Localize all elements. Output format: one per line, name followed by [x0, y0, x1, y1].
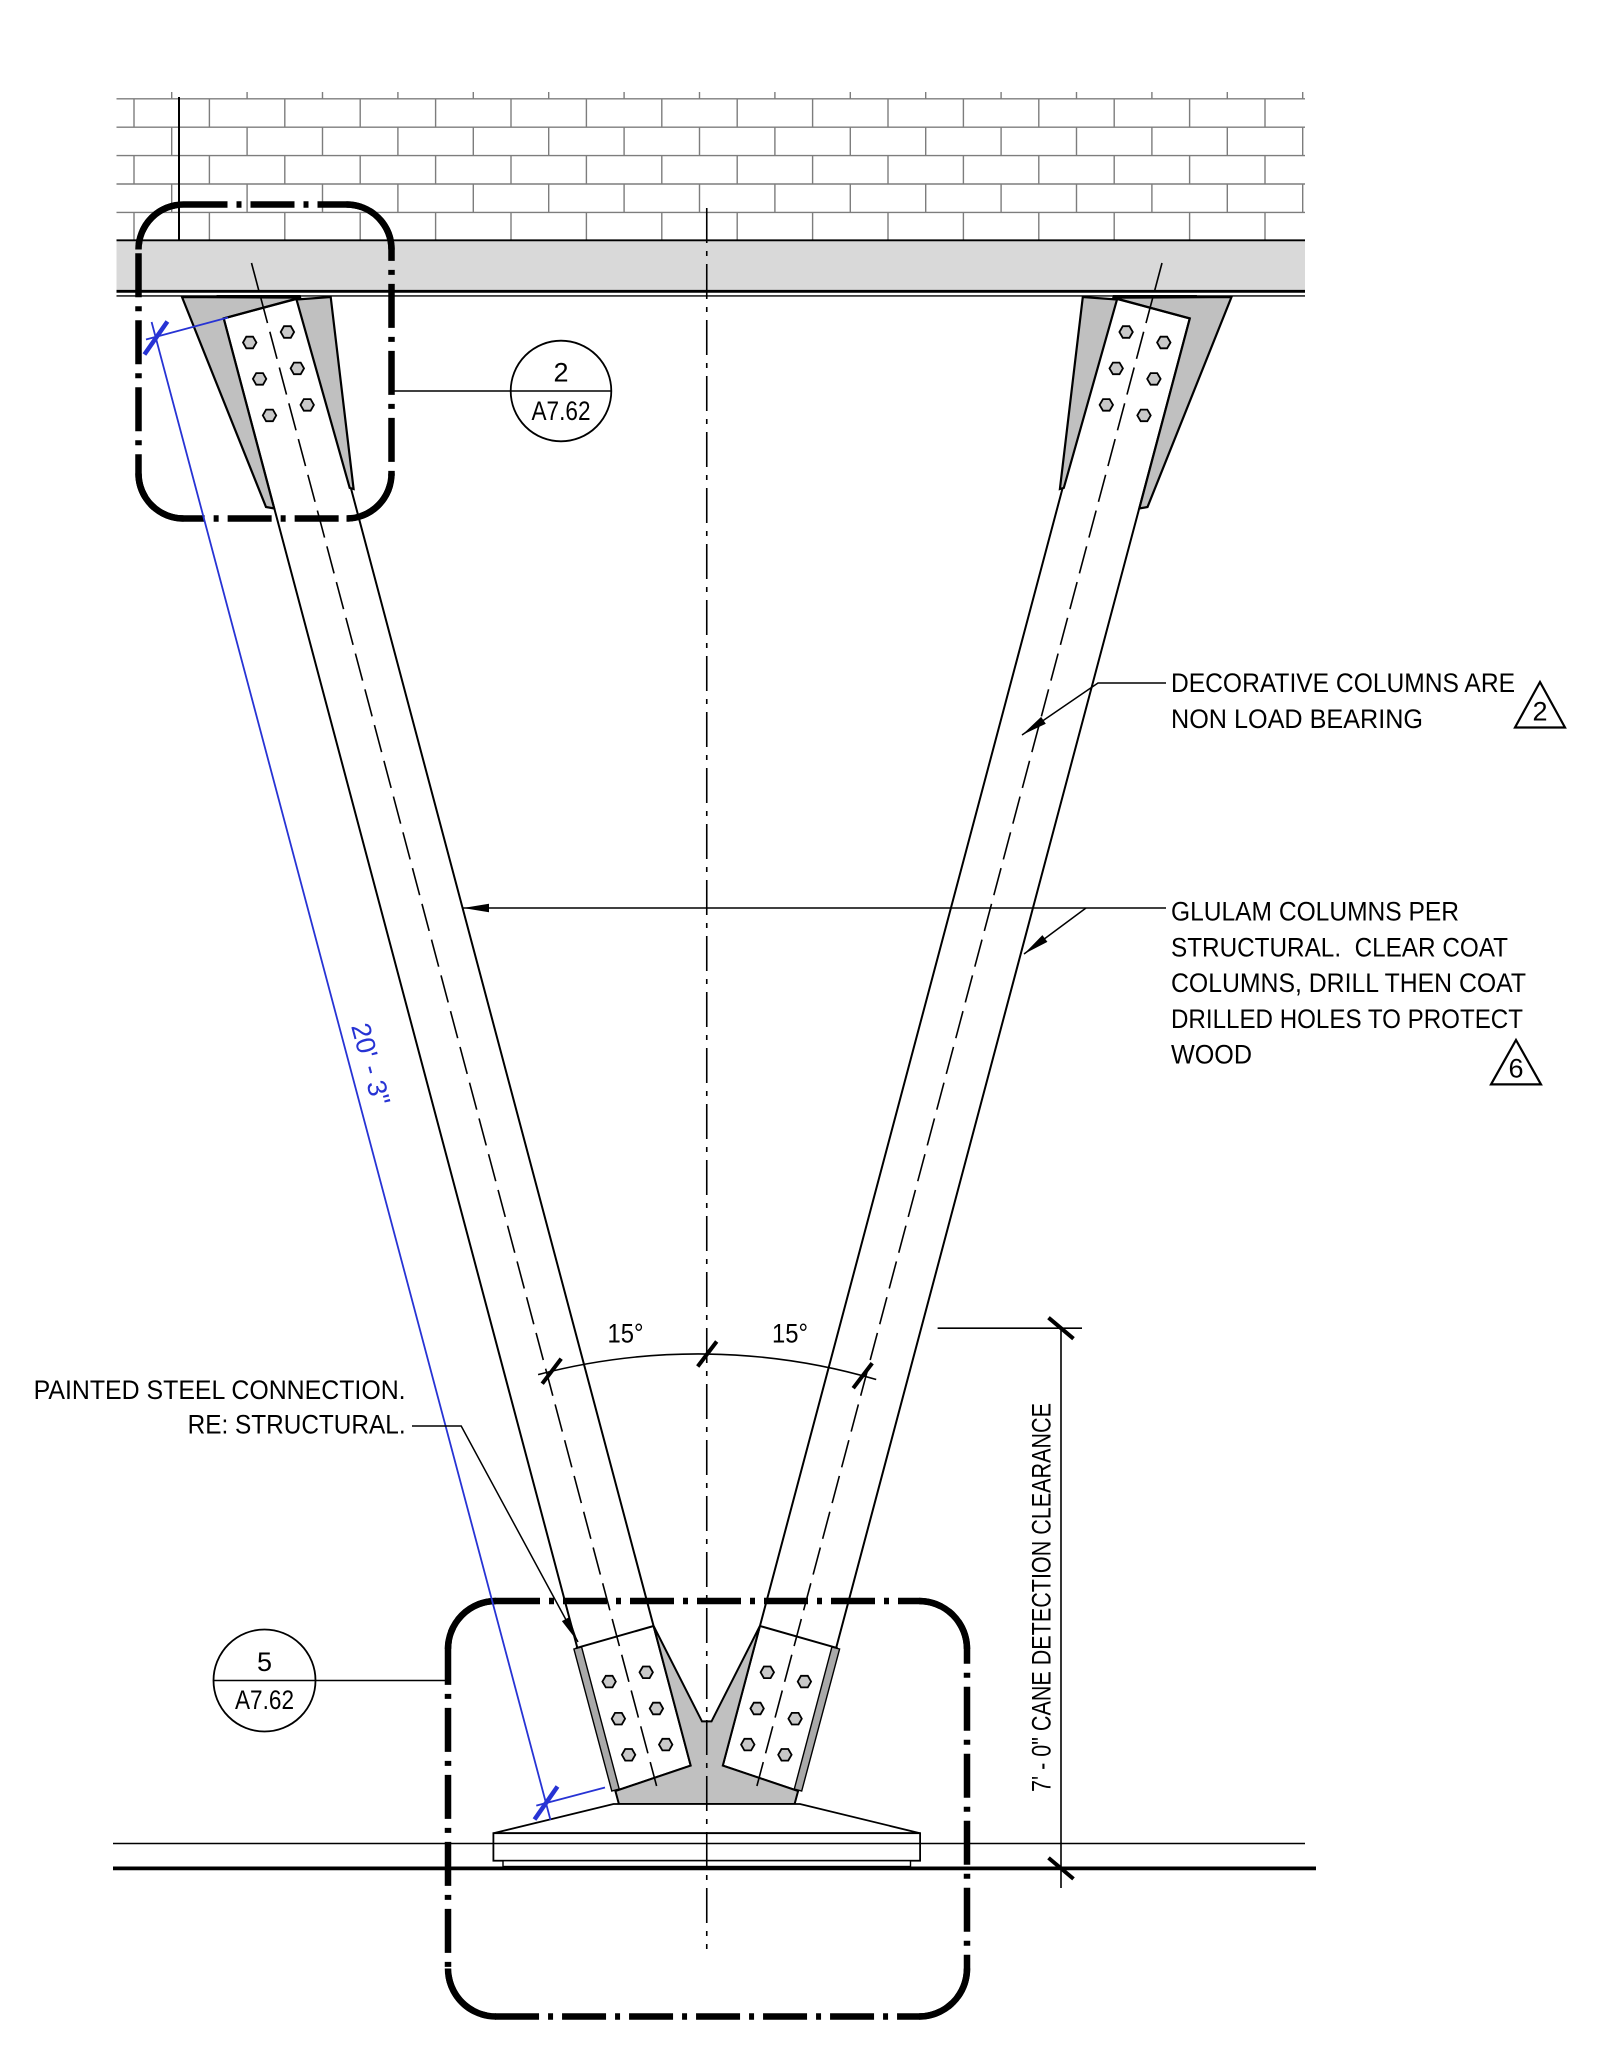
svg-text:PAINTED STEEL CONNECTION.: PAINTED STEEL CONNECTION. — [34, 1375, 406, 1405]
svg-text:5: 5 — [257, 1647, 272, 1677]
svg-text:6: 6 — [1508, 1054, 1523, 1084]
svg-text:NON LOAD BEARING: NON LOAD BEARING — [1171, 704, 1423, 734]
svg-text:RE: STRUCTURAL.: RE: STRUCTURAL. — [188, 1409, 406, 1439]
svg-text:2: 2 — [553, 358, 568, 388]
svg-text:WOOD: WOOD — [1171, 1040, 1252, 1070]
svg-text:DECORATIVE COLUMNS ARE: DECORATIVE COLUMNS ARE — [1171, 668, 1515, 698]
svg-text:COLUMNS, DRILL THEN COAT: COLUMNS, DRILL THEN COAT — [1171, 968, 1526, 998]
svg-text:GLULAM COLUMNS PER: GLULAM COLUMNS PER — [1171, 897, 1459, 927]
svg-text:STRUCTURAL. CLEAR COAT: STRUCTURAL. CLEAR COAT — [1171, 932, 1508, 962]
svg-text:2: 2 — [1532, 697, 1547, 727]
svg-text:15°: 15° — [608, 1319, 644, 1349]
svg-text:DRILLED HOLES TO PROTECT: DRILLED HOLES TO PROTECT — [1171, 1004, 1523, 1034]
svg-text:A7.62: A7.62 — [235, 1685, 294, 1715]
svg-text:15°: 15° — [772, 1319, 808, 1349]
svg-text:A7.62: A7.62 — [532, 396, 591, 426]
svg-text:7' - 0" CANE DETECTION CLEARAN: 7' - 0" CANE DETECTION CLEARANCE — [1027, 1403, 1057, 1792]
